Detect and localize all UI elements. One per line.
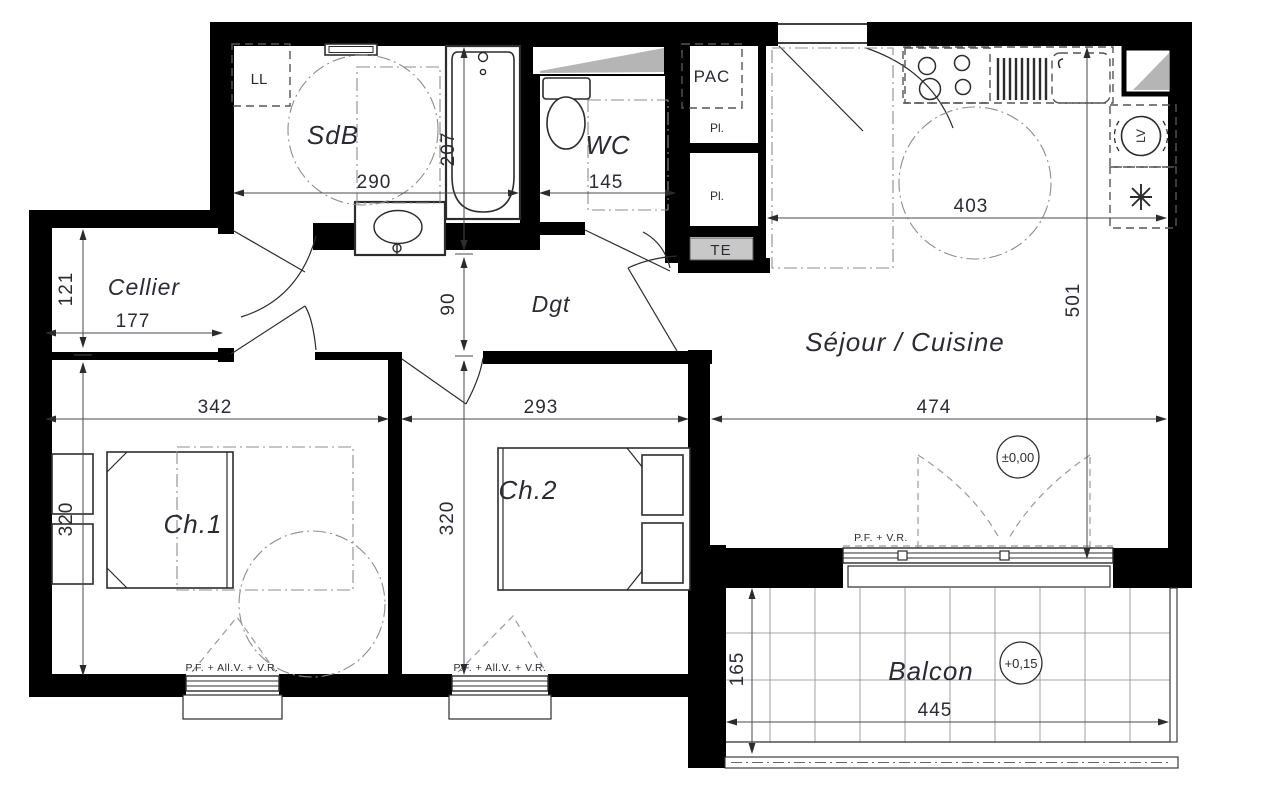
dim-sdb-width: 290 bbox=[357, 172, 392, 193]
level-balcon-value: +0,15 bbox=[1005, 656, 1038, 671]
duct-shaft bbox=[1124, 48, 1172, 94]
window-tag-ch2: P.F. + All.V. + V.R. bbox=[453, 662, 546, 674]
kitchen-sink bbox=[1052, 53, 1110, 103]
dim-wc-width: 145 bbox=[589, 172, 624, 193]
dim-cellier-width: 177 bbox=[116, 311, 151, 332]
feature-label-ll: LL bbox=[251, 71, 268, 88]
feature-label-pac: PAC bbox=[694, 67, 731, 86]
room-label-balcon: Balcon bbox=[888, 656, 974, 686]
dim-ch2-depth: 320 bbox=[437, 501, 458, 536]
window-tag-sejour: P.F. + V.R. bbox=[854, 532, 908, 544]
level-marker-balcon: +0,15 bbox=[1000, 642, 1042, 684]
dim-bath-depth: 207 bbox=[438, 132, 459, 167]
floor-plan-drawing: 290 145 403 177 342 293 474 445 207 90 3… bbox=[0, 0, 1276, 800]
level-sejour-value: ±0,00 bbox=[1002, 450, 1034, 465]
toilet bbox=[543, 78, 590, 149]
window-tag-ch1: P.F. + All.V. + V.R. bbox=[185, 662, 278, 674]
wc-door bbox=[585, 230, 670, 271]
room-label-wc: WC bbox=[585, 130, 630, 160]
dim-balcon-depth: 165 bbox=[727, 652, 748, 687]
towel-radiator bbox=[325, 44, 377, 55]
dim-dgt-depth: 90 bbox=[438, 292, 459, 315]
dim-sejour-width: 474 bbox=[917, 397, 952, 418]
window-sejour bbox=[843, 546, 1113, 587]
feature-label-lv: LV bbox=[1134, 129, 1148, 143]
washbasin-vanity bbox=[355, 202, 445, 255]
dim-cuisine-width: 403 bbox=[954, 196, 989, 217]
dim-sejour-depth: 501 bbox=[1063, 283, 1084, 318]
drainer bbox=[998, 58, 1046, 100]
room-label-dgt: Dgt bbox=[532, 291, 571, 317]
room-label-cellier: Cellier bbox=[108, 274, 181, 300]
ch2-door bbox=[402, 358, 483, 404]
dim-ch1-depth: 320 bbox=[56, 502, 77, 537]
feature-label-pl-top: Pl. bbox=[710, 121, 724, 135]
room-label-ch1: Ch.1 bbox=[164, 509, 223, 539]
feature-label-pl-bottom: Pl. bbox=[710, 189, 724, 203]
window-ch2 bbox=[449, 676, 551, 719]
fridge bbox=[1110, 167, 1176, 228]
bed-ch2 bbox=[498, 448, 690, 590]
sdb-door bbox=[234, 231, 316, 317]
feature-label-te: TE bbox=[710, 242, 731, 259]
entrance-door bbox=[779, 46, 953, 131]
dim-cellier-depth: 121 bbox=[56, 272, 77, 307]
hob bbox=[905, 48, 990, 103]
ch1-door bbox=[231, 306, 316, 354]
dim-ch2-width: 293 bbox=[524, 397, 559, 418]
level-marker-sejour: ±0,00 bbox=[997, 436, 1039, 478]
dim-balcon-width: 445 bbox=[918, 700, 953, 721]
window-ch1 bbox=[183, 676, 282, 719]
floor-plan-page: 290 145 403 177 342 293 474 445 207 90 3… bbox=[0, 0, 1276, 800]
wc-soffit bbox=[532, 46, 665, 75]
dim-ch1-width: 342 bbox=[198, 397, 233, 418]
cold-snowflake-icon bbox=[1130, 184, 1152, 210]
room-label-ch2: Ch.2 bbox=[499, 475, 558, 505]
room-label-sdb: SdB bbox=[307, 120, 359, 150]
room-label-sejour: Séjour / Cuisine bbox=[805, 327, 1005, 357]
